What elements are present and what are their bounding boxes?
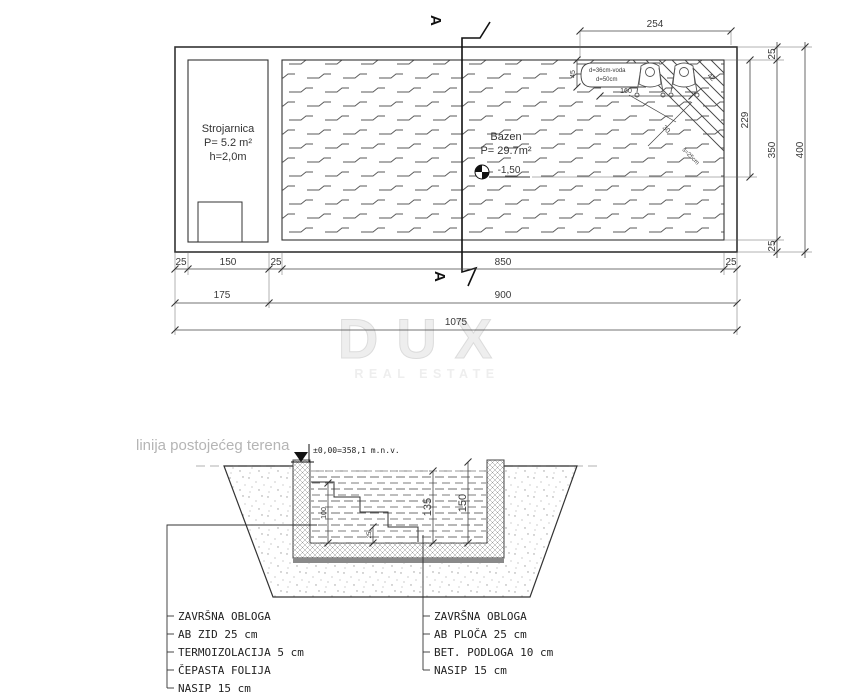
svg-text:160: 160: [620, 88, 632, 95]
legend-right-item: ZAVRŠNA OBLOGA: [434, 610, 527, 623]
pool-level-value: -1,50: [498, 165, 521, 176]
legend-left-item: ČEPASTA FOLIJA: [178, 664, 271, 677]
dim-step-rise: 25: [367, 531, 373, 538]
dim-wall-right: 25: [725, 257, 737, 268]
dim-wall-bottom: 25: [767, 240, 778, 252]
svg-text:254: 254: [647, 19, 664, 30]
watermark: DUX REAL ESTATE: [338, 307, 510, 381]
section-view: linija postojećeg terena ±0,00=358,1 m.n…: [136, 437, 600, 694]
strojarnica-height: h=2,0m: [210, 151, 247, 163]
legend-left-item: NASIP 15 cm: [178, 682, 251, 694]
dim-pool-inner-offset: 229: [740, 111, 751, 128]
bazen-name: Bazen: [490, 131, 521, 143]
equipment-box: [198, 202, 242, 242]
drawing-canvas: DUX REAL ESTATE d=36cm-voda d=50cm: [0, 0, 868, 694]
legend-left-item: TERMOIZOLACIJA 5 cm: [178, 646, 304, 659]
bazen-area: P= 29.7m²: [480, 145, 531, 157]
svg-text:45: 45: [570, 70, 577, 78]
dim-bench-width: 254: [577, 19, 735, 58]
terrain-line-label: linija postojećeg terena: [136, 437, 290, 454]
dim-pool-width: 850: [495, 257, 512, 268]
section-marker-bottom: A: [431, 271, 448, 282]
legend-right-item: AB PLOČA 25 cm: [434, 628, 527, 641]
dim-pool-block: 900: [495, 290, 512, 301]
dim-total-width: 1075: [445, 317, 468, 328]
concrete-base-strip: [293, 558, 504, 563]
datum-label: ±0,00=358,1 m.n.v.: [313, 446, 400, 455]
legend-left-item: AB ZID 25 cm: [178, 628, 258, 641]
strojarnica-name: Strojarnica: [202, 123, 255, 135]
legend-right-item: BET. PODLOGA 10 cm: [434, 646, 554, 659]
dim-pool-depth: 150: [457, 494, 469, 512]
plan-view: d=36cm-voda d=50cm A A -1,5: [172, 15, 813, 335]
bench-note-1: d=36cm-voda: [589, 68, 626, 74]
dim-wall-left: 25: [175, 257, 187, 268]
dim-wall-top: 25: [767, 48, 778, 60]
watermark-subtitle: REAL ESTATE: [354, 367, 499, 381]
dim-steps-height: 100: [321, 507, 328, 519]
dim-water-depth: 135: [422, 498, 434, 516]
section-marker-top: A: [427, 15, 444, 26]
watermark-title: DUX: [338, 307, 510, 370]
dim-inner-height: 350: [767, 141, 778, 158]
bench-note-2: d=50cm: [596, 77, 618, 83]
dim-total-height: 400: [795, 141, 806, 158]
dim-wall-mid: 25: [270, 257, 282, 268]
bottom-dims: 25 150 25 850 25 175 900 1075: [172, 252, 741, 335]
dim-strojarnica-width: 150: [220, 257, 237, 268]
legend-left-item: ZAVRŠNA OBLOGA: [178, 610, 271, 623]
strojarnica-area: P= 5.2 m²: [204, 137, 252, 149]
legend-right-item: NASIP 15 cm: [434, 664, 507, 677]
dim-left-block: 175: [214, 290, 231, 301]
pool-technical-drawing: DUX REAL ESTATE d=36cm-voda d=50cm: [0, 0, 868, 694]
